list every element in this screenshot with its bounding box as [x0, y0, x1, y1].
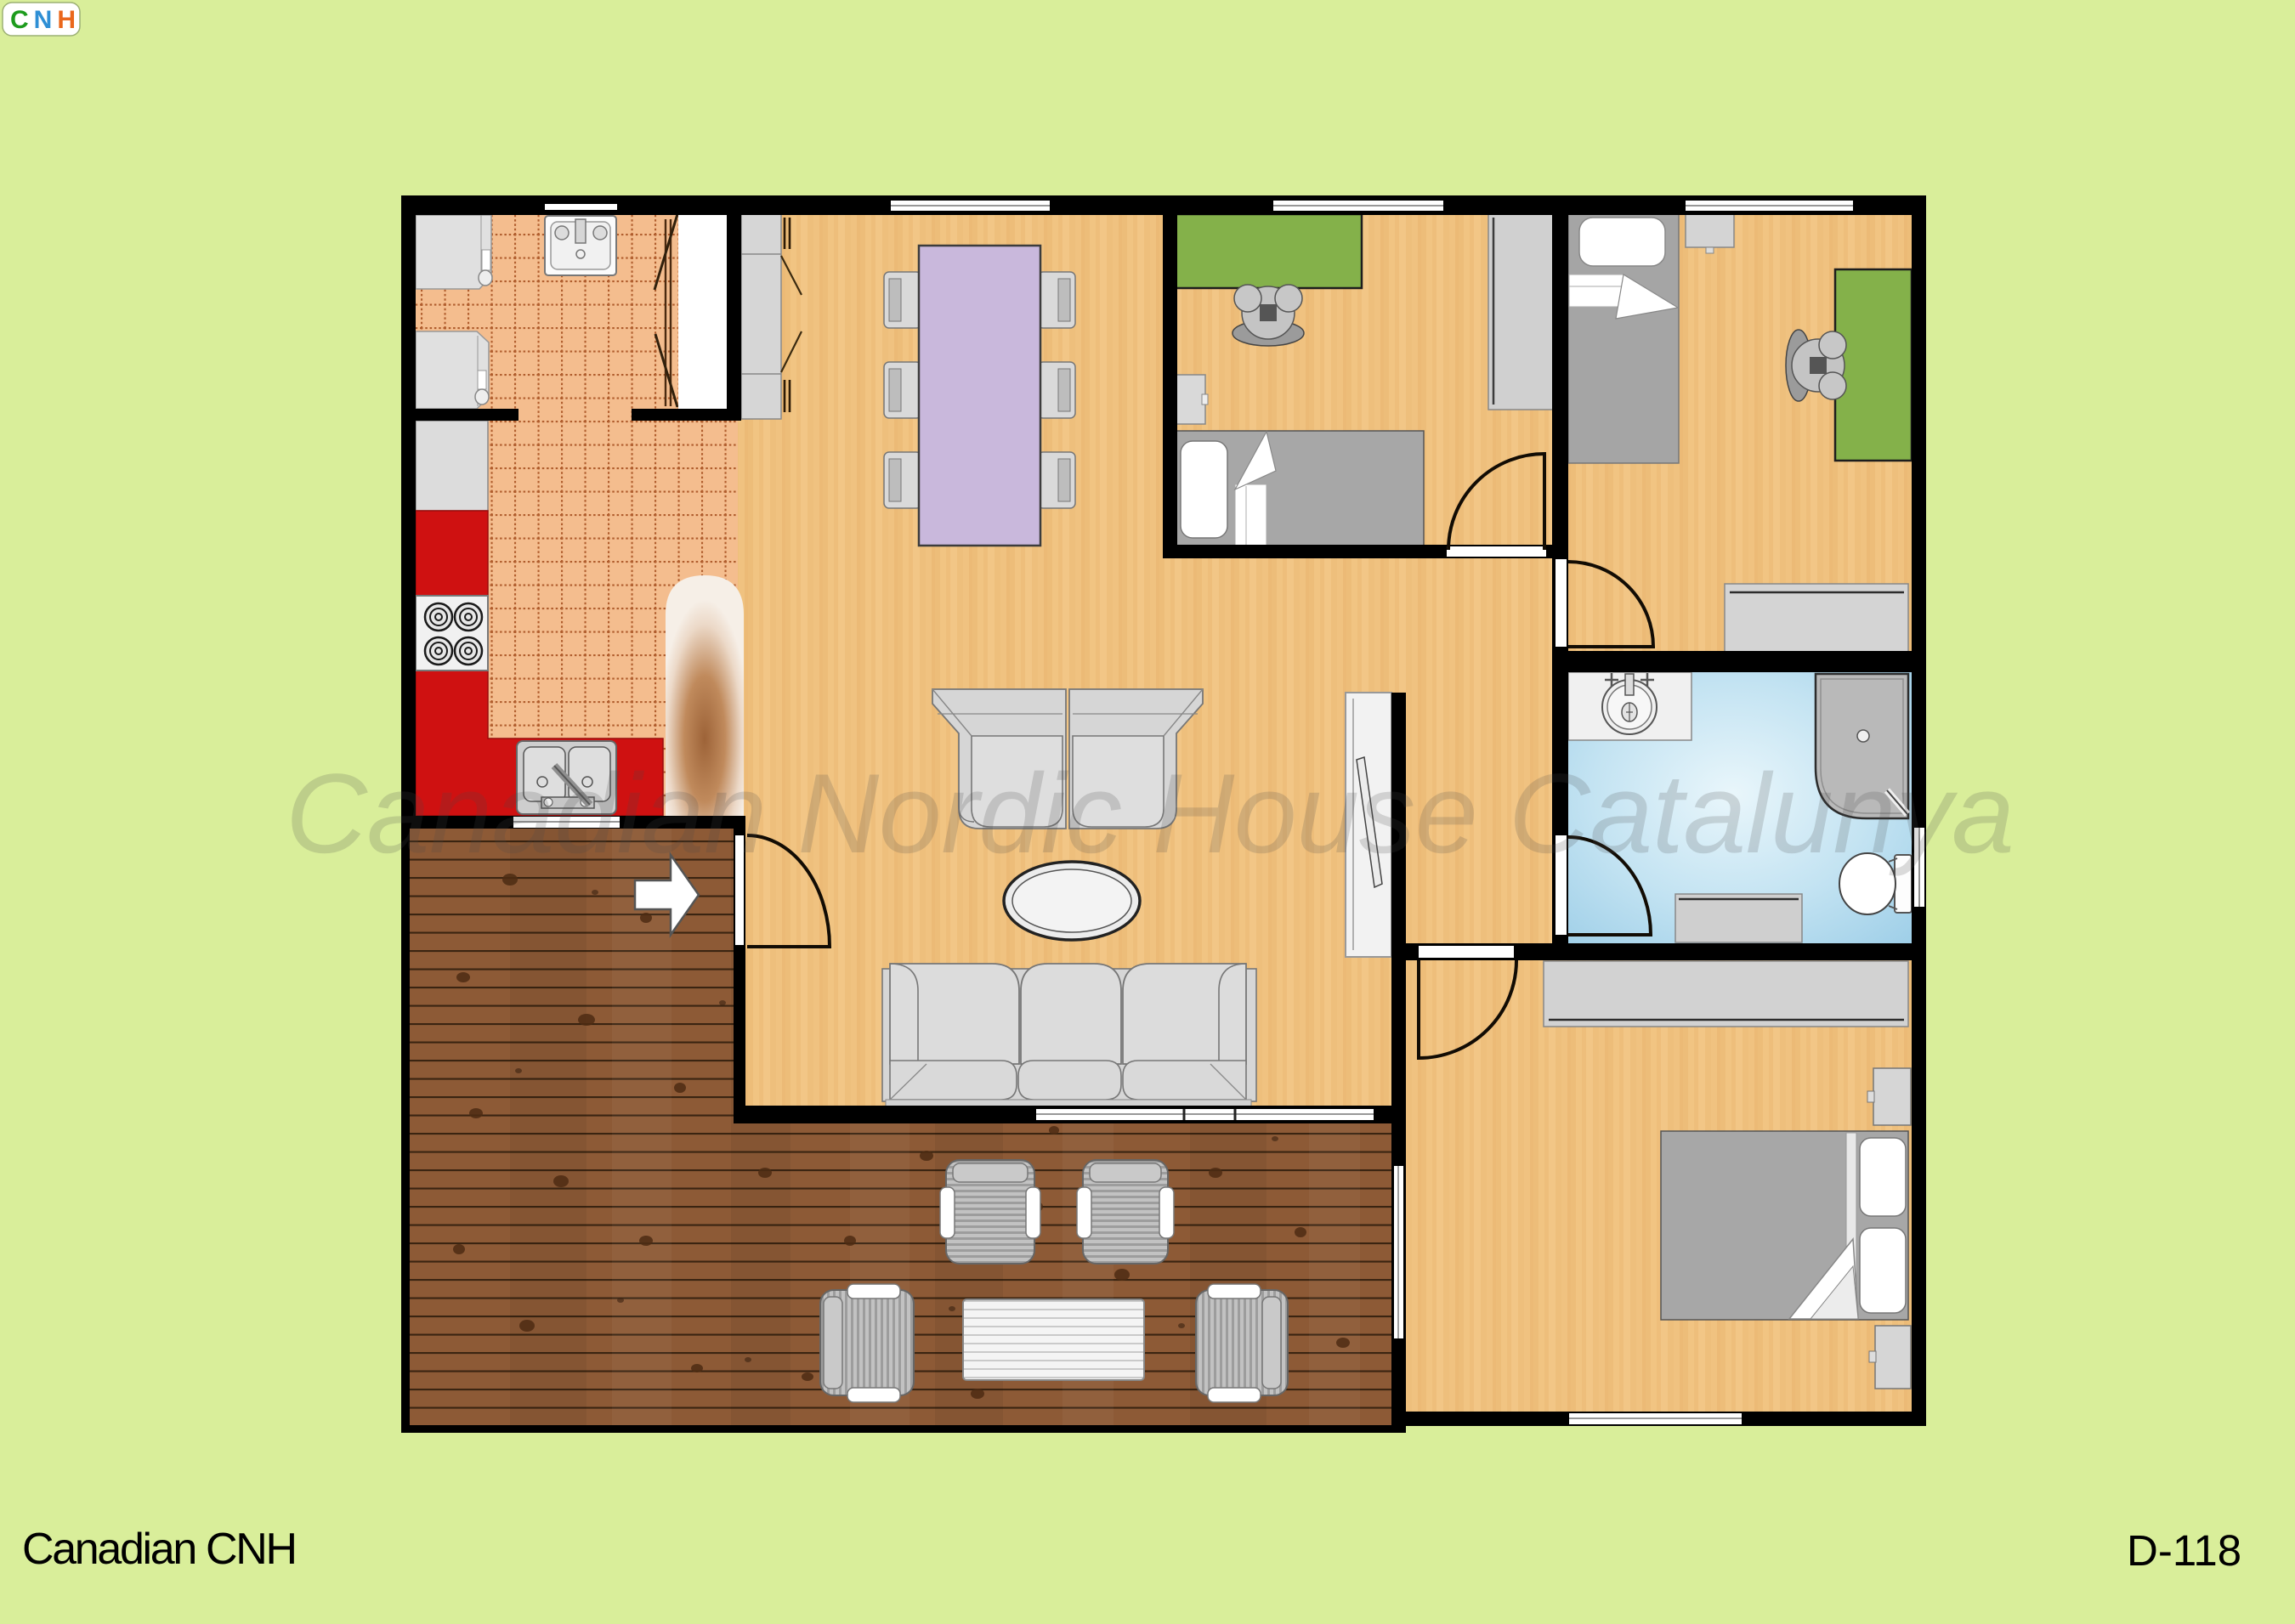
svg-text:Canadian CNH: Canadian CNH	[22, 1525, 297, 1574]
svg-text:D-118: D-118	[2127, 1526, 2241, 1575]
svg-text:CNH: CNH	[10, 6, 76, 34]
svg-text:Canadian Nordic House Cataluny: Canadian Nordic House Catalunya	[286, 751, 2014, 877]
